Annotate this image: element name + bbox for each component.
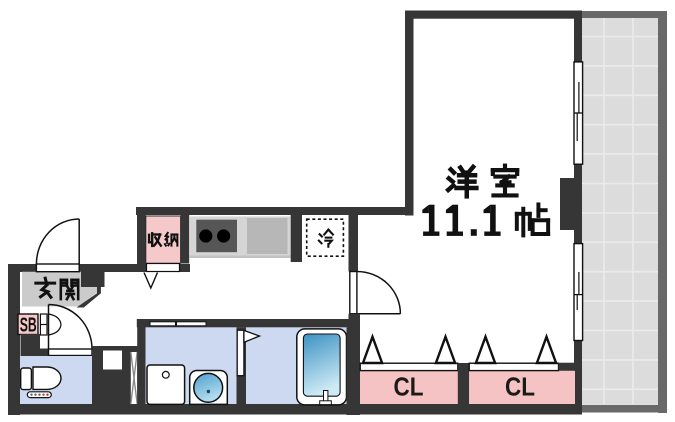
- svg-text:SB: SB: [20, 315, 37, 337]
- svg-text:CL: CL: [394, 372, 424, 402]
- svg-text:CL: CL: [505, 372, 535, 402]
